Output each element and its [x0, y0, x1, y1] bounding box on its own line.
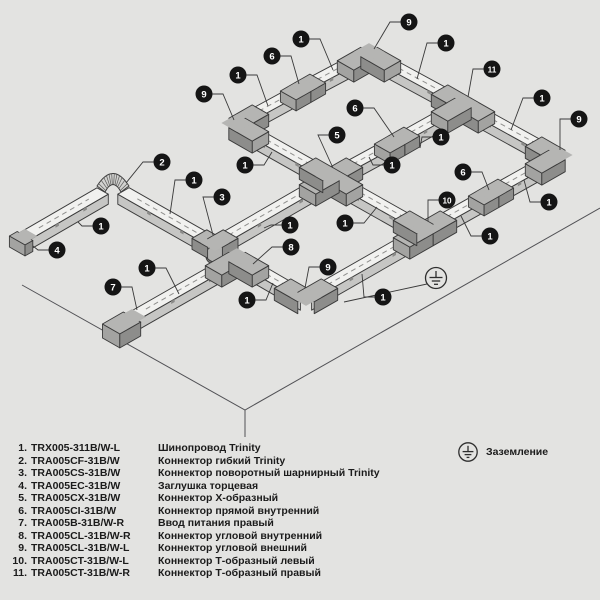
- callout-number: 9: [576, 114, 581, 125]
- callout-number: 5: [334, 130, 340, 141]
- legend-row-6: 6.TRA005CI-31B/WКоннектор прямой внутрен…: [0, 505, 600, 518]
- legend-row-9: 9.TRA005CL-31B/W-LКоннектор угловой внеш…: [0, 542, 600, 555]
- callout-3: 3: [203, 189, 231, 236]
- legend-num-4: 4.: [11, 480, 27, 493]
- callout-number: 11: [488, 65, 497, 74]
- legend-num-6: 6.: [11, 505, 27, 518]
- legend-row-7: 7.TRA005B-31B/W-RВвод питания правый: [0, 517, 600, 530]
- callout-9: 9: [374, 14, 418, 50]
- legend-row-10: 10.TRA005CT-31B/W-LКоннектор Т-образный …: [0, 555, 600, 568]
- legend-num-7: 7.: [11, 517, 27, 530]
- legend-desc-7: Ввод питания правый: [158, 517, 600, 530]
- legend-code-6: TRA005CI-31B/W: [31, 505, 158, 518]
- callout-number: 1: [235, 70, 241, 81]
- callout-1: 1: [170, 172, 203, 215]
- callout-number: 2: [159, 157, 164, 168]
- legend-row-4: 4.TRA005EC-31B/WЗаглушка торцевая: [0, 480, 600, 493]
- callout-number: 1: [389, 160, 395, 171]
- callout-number: 1: [546, 197, 552, 208]
- callout-1: 1: [78, 218, 110, 235]
- legend-num-11: 11.: [11, 567, 27, 580]
- legend-num-3: 3.: [11, 467, 27, 480]
- connector-9-N: [337, 43, 400, 82]
- grounding-icon: [457, 441, 479, 463]
- grounding-label: Заземление: [486, 446, 548, 458]
- grounding-legend: Заземление: [457, 441, 548, 463]
- legend-code-8: TRA005CL-31B/W-R: [31, 530, 158, 543]
- callout-number: 7: [110, 282, 115, 293]
- callout-number: 1: [242, 160, 248, 171]
- callout-number: 1: [342, 218, 348, 229]
- legend-code-5: TRA005CX-31B/W: [31, 492, 158, 505]
- legend-desc-4: Заглушка торцевая: [158, 480, 600, 493]
- legend-row-3: 3.TRA005CS-31B/WКоннектор поворотный шар…: [0, 467, 600, 480]
- legend-desc-11: Коннектор Т-образный правый: [158, 567, 600, 580]
- connector-7-feed: [103, 309, 146, 348]
- callout-1: 1: [417, 35, 455, 80]
- callout-1: 1: [511, 90, 551, 131]
- connector-6-C6a: [280, 74, 325, 111]
- callout-9: 9: [196, 86, 235, 121]
- callout-1: 1: [230, 67, 269, 107]
- legend-row-8: 8.TRA005CL-31B/W-RКоннектор угловой внут…: [0, 530, 600, 543]
- callout-number: 9: [201, 89, 206, 100]
- legend-code-2: TRA005CF-31B/W: [31, 455, 158, 468]
- legend-num-5: 5.: [11, 492, 27, 505]
- legend-code-11: TRA005CT-31B/W-R: [31, 567, 158, 580]
- legend-num-2: 2.: [11, 455, 27, 468]
- callout-number: 9: [325, 262, 330, 273]
- callout-11: 11: [468, 61, 501, 98]
- legend-desc-3: Коннектор поворотный шарнирный Trinity: [158, 467, 600, 480]
- legend-code-7: TRA005B-31B/W-R: [31, 517, 158, 530]
- callout-number: 1: [144, 263, 150, 274]
- callout-number: 4: [54, 245, 60, 256]
- legend-num-10: 10.: [11, 555, 27, 568]
- callout-8: 8: [253, 239, 300, 265]
- callout-number: 1: [487, 231, 493, 242]
- callout-7: 7: [105, 279, 138, 311]
- callout-2: 2: [126, 154, 171, 184]
- legend-desc-8: Коннектор угловой внутренний: [158, 530, 600, 543]
- callout-6: 6: [347, 100, 395, 138]
- callout-number: 1: [539, 93, 545, 104]
- legend-num-8: 8.: [11, 530, 27, 543]
- callout-number: 10: [442, 196, 452, 205]
- connector-10-T10: [393, 211, 456, 259]
- callout-number: 9: [406, 17, 411, 28]
- legend-row-5: 5.TRA005CX-31B/WКоннектор X-образный: [0, 492, 600, 505]
- legend-code-3: TRA005CS-31B/W: [31, 467, 158, 480]
- callout-6: 6: [264, 48, 300, 85]
- callout-number: 3: [219, 192, 224, 203]
- callout-number: 6: [269, 51, 274, 62]
- callout-9: 9: [560, 111, 588, 151]
- callout-number: 1: [191, 175, 197, 186]
- connector-2-flex: [97, 174, 129, 193]
- callout-number: 1: [438, 132, 444, 143]
- legend-code-1: TRX005-311B/W-L: [31, 442, 158, 455]
- callout-number: 8: [288, 242, 293, 253]
- callout-number: 1: [98, 221, 104, 232]
- callout-number: 6: [352, 103, 357, 114]
- callout-number: 1: [443, 38, 449, 49]
- callout-number: 1: [287, 220, 293, 231]
- legend-num-1: 1.: [11, 442, 27, 455]
- legend-desc-6: Коннектор прямой внутренний: [158, 505, 600, 518]
- page: 911611191695111216310111114819711 1.TRX0…: [0, 0, 600, 600]
- legend-code-9: TRA005CL-31B/W-L: [31, 542, 158, 555]
- callout-number: 1: [380, 292, 386, 303]
- legend-desc-10: Коннектор Т-образный левый: [158, 555, 600, 568]
- connector-9-E: [525, 137, 572, 185]
- connector-6-C6c: [468, 179, 513, 216]
- callout-number: 1: [244, 295, 250, 306]
- legend-desc-9: Коннектор угловой внешний: [158, 542, 600, 555]
- callout-6: 6: [455, 164, 490, 191]
- callout-number: 6: [460, 167, 465, 178]
- callout-number: 1: [298, 34, 304, 45]
- connector-11-T11: [431, 85, 494, 133]
- legend-row-11: 11.TRA005CT-31B/W-RКоннектор Т-образный …: [0, 567, 600, 580]
- legend-desc-5: Коннектор X-образный: [158, 492, 600, 505]
- legend-code-4: TRA005EC-31B/W: [31, 480, 158, 493]
- legend-code-10: TRA005CT-31B/W-L: [31, 555, 158, 568]
- callout-1: 1: [293, 31, 334, 71]
- connector-5-X: [299, 158, 362, 206]
- legend-num-9: 9.: [11, 542, 27, 555]
- connector-9-W: [221, 105, 268, 153]
